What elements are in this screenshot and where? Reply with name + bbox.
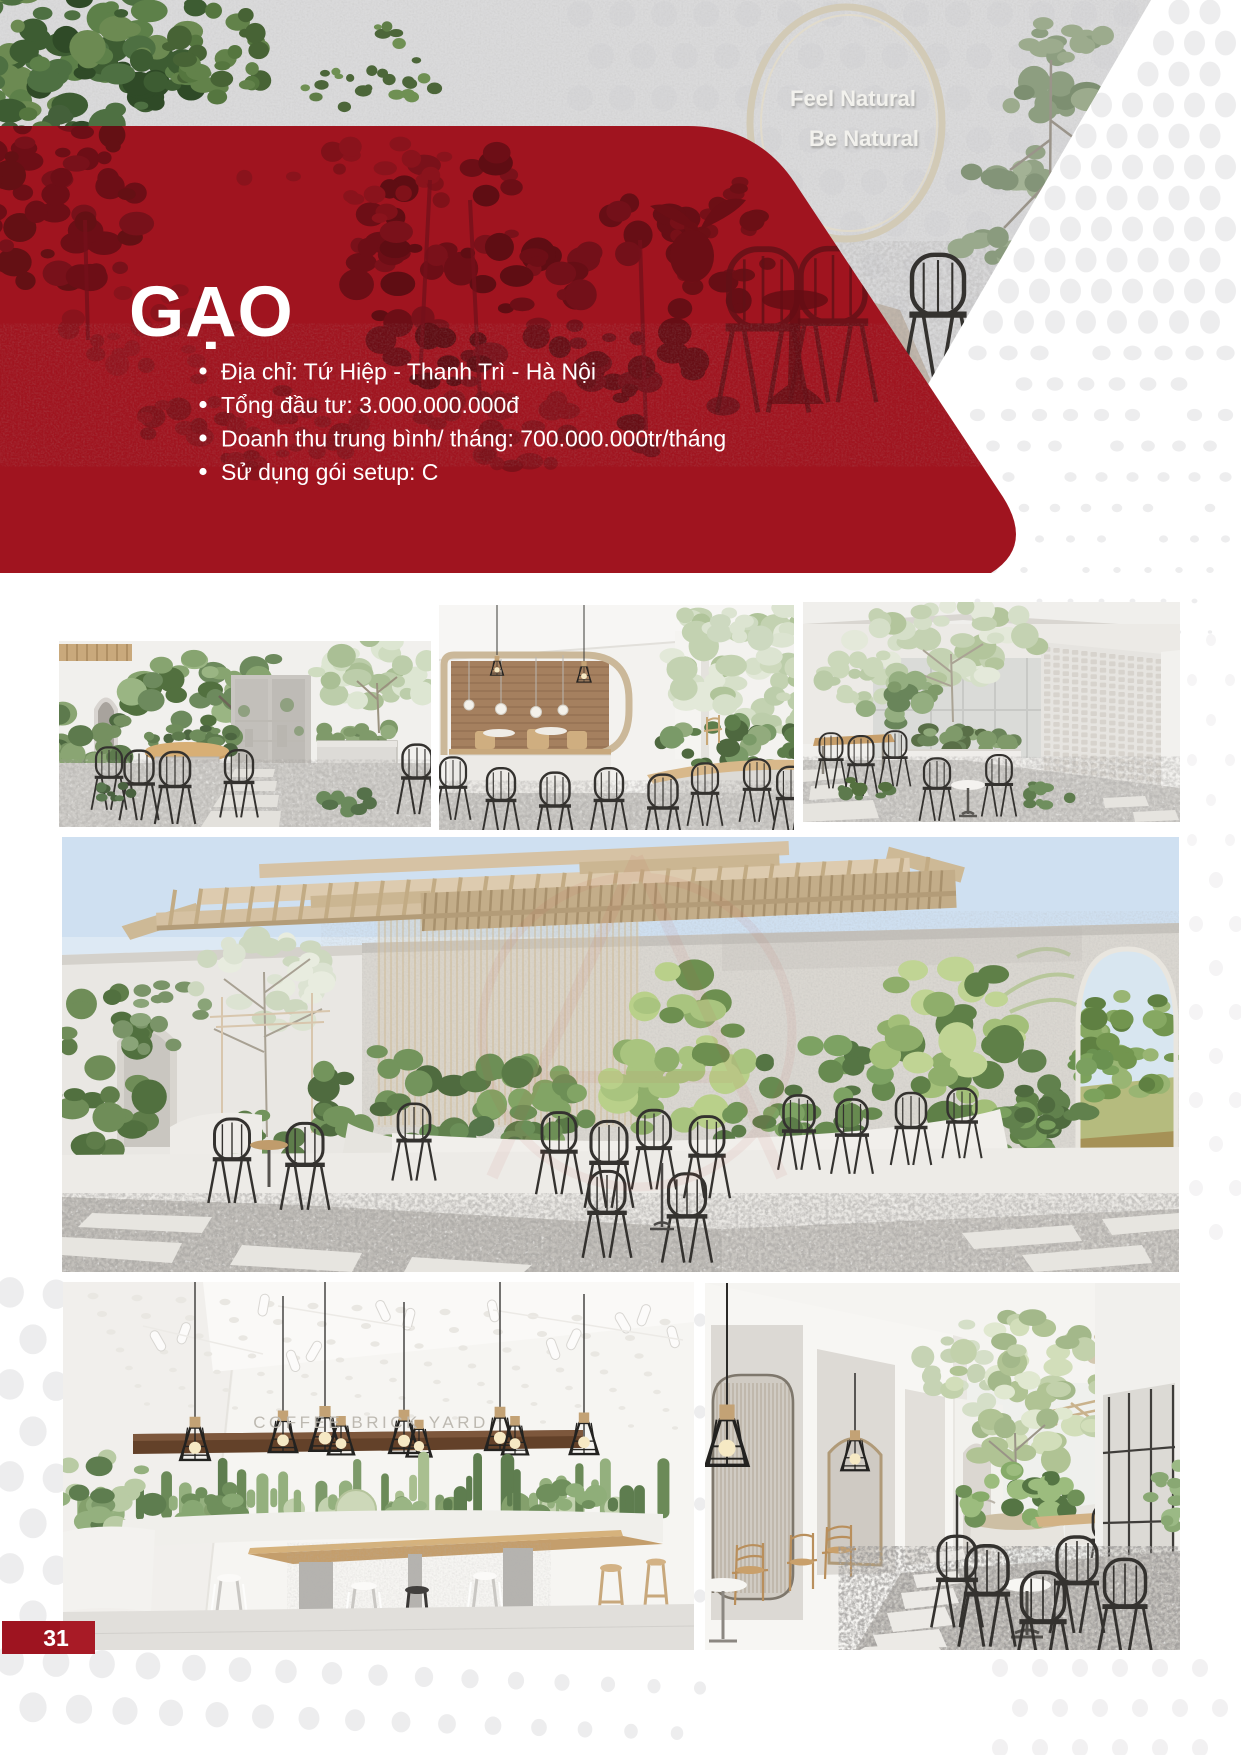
svg-text:Be Natural: Be Natural [809, 126, 919, 151]
svg-text:COFFEE BRICK YARD: COFFEE BRICK YARD [253, 1413, 489, 1432]
svg-text:31: 31 [43, 1625, 69, 1651]
svg-text:Sử dụng gói setup: C: Sử dụng gói setup: C [221, 459, 438, 485]
svg-text:Feel Natural: Feel Natural [790, 86, 916, 111]
svg-text:Tổng đầu tư: 3.000.000.000đ: Tổng đầu tư: 3.000.000.000đ [221, 392, 519, 418]
svg-text:Địa chỉ: Tứ Hiệp - Thanh Trì -: Địa chỉ: Tứ Hiệp - Thanh Trì - Hà Nội [221, 359, 596, 385]
svg-text:Doanh thu trung bình/ tháng: 7: Doanh thu trung bình/ tháng: 700.000.000… [221, 426, 726, 452]
svg-text:GẠO: GẠO [129, 273, 294, 352]
